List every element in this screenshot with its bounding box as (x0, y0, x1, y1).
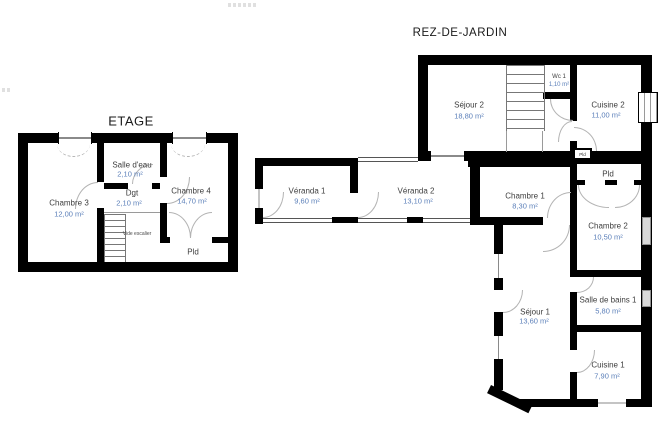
rdj-wall-veranda-divider (350, 158, 358, 193)
room-area-sejour1: 13,60 m² (519, 317, 549, 326)
rdj-wall-spine-a (570, 161, 577, 277)
etage-wall-bottom (18, 262, 238, 272)
etage-door-pld-left (169, 212, 191, 238)
etage-window-2 (172, 132, 207, 144)
etage-wall-int-h1b (152, 183, 160, 189)
etage-stair-edge-line (104, 212, 160, 213)
rdj-door-veranda1 (263, 192, 284, 218)
rdj-staircase-rail-left (506, 131, 507, 152)
etage-window-1-swing (57, 144, 90, 157)
rdj-door-hall (558, 121, 572, 142)
room-label-chambre4: Chambre 4 (171, 187, 211, 196)
rez-de-jardin-title: REZ-DE-JARDIN (413, 27, 508, 39)
etage-staircase (104, 214, 126, 262)
rdj-window-sejour1-lower (494, 335, 503, 360)
room-label-salle-deau: Salle d'eau (112, 161, 151, 170)
room-label-vide-escalier: Vide escalier (123, 231, 152, 237)
room-label-veranda1: Véranda 1 (289, 187, 326, 196)
room-area-sdb1: 5,80 m² (595, 307, 620, 316)
room-label-etage-pld: Pld (187, 248, 199, 257)
etage-wall-int-v2a (160, 143, 167, 177)
rdj-staircase-rail-right (542, 131, 543, 152)
rdj-wall-sejour1-left-a (494, 225, 503, 253)
room-area-dgt: 2,10 m² (116, 199, 141, 208)
rdj-window-sejour2 (430, 151, 465, 161)
room-label-veranda2: Véranda 2 (398, 187, 435, 196)
rdj-wall-upper-top (418, 55, 652, 65)
rdj-wall-veranda1-top (255, 158, 352, 166)
rdj-wall-chambre1-left (470, 163, 480, 225)
room-area-wc1: 1,10 m² (549, 82, 569, 88)
rdj-wall-lower-bottom (520, 399, 652, 407)
room-area-cuisine2: 11,00 m² (591, 111, 620, 120)
rdj-wall-veranda1-left-b (255, 207, 263, 224)
rdj-wall-sdb-cuisine1 (570, 325, 652, 332)
rdj-window-sejour1-upper (494, 253, 503, 279)
rdj-door-chambre1 (547, 192, 571, 218)
floor-plan-canvas: ETAGE Chambre 3 12,00 m² Salle d'eau 2,1… (0, 0, 667, 440)
rdj-veranda2-glazing-top (358, 157, 418, 162)
room-area-veranda2: 13,10 m² (403, 197, 433, 206)
rdj-pld-closet-small: Pld (573, 148, 592, 160)
room-label-wc1: Wc 1 (552, 74, 566, 80)
room-label-cuisine1: Cuisine 1 (591, 361, 624, 370)
rdj-wall-sejour1-left-c (494, 312, 503, 335)
rdj-veranda2-glazing-bottom-a (358, 218, 407, 223)
etage-window-2-swing (171, 144, 205, 157)
rdj-wall-chambre1-top (468, 158, 577, 167)
room-area-cuisine1: 7,90 m² (594, 372, 619, 381)
etage-wall-right (228, 133, 238, 272)
room-area-sejour2: 18,80 m² (454, 112, 484, 121)
room-label-chambre3: Chambre 3 (49, 199, 89, 208)
etage-wall-int-v1a (97, 143, 104, 182)
room-label-sejour1: Séjour 1 (520, 308, 550, 317)
room-area-chambre2: 10,50 m² (593, 233, 623, 242)
rdj-staircase (506, 65, 545, 131)
room-label-sdb1: Salle de bains 1 (580, 296, 637, 305)
etage-wall-left (18, 133, 28, 272)
etage-wall-pld-b (212, 237, 238, 243)
room-label-pld-small: Pld (579, 152, 586, 157)
rdj-window-cuisine1 (597, 399, 627, 407)
rdj-window-veranda1-left (255, 188, 263, 209)
rdj-veranda1-glazing-bottom (263, 218, 332, 223)
room-area-salle-deau: 2,10 m² (117, 170, 142, 179)
room-label-cuisine2: Cuisine 2 (591, 101, 624, 110)
etage-door-pld-right (190, 212, 212, 238)
rdj-door-pld-left (578, 185, 609, 208)
room-label-sejour2: Séjour 2 (454, 101, 484, 110)
room-area-chambre3: 12,00 m² (54, 210, 84, 219)
rdj-door-sdb1 (577, 277, 594, 293)
rdj-door-veranda2 (358, 192, 379, 218)
rdj-wall-chambre2-sdb (570, 270, 652, 277)
rdj-wall-spine-b (570, 292, 577, 350)
rdj-wall-lower-right (641, 163, 652, 407)
rdj-wall-upper-left (418, 55, 428, 161)
room-label-rdj-pld: Pld (602, 170, 614, 179)
rdj-door-wc1 (550, 99, 573, 121)
rdj-veranda-pillar-1 (332, 217, 358, 223)
room-area-veranda1: 9,60 m² (294, 197, 319, 206)
etage-wall-int-h1a (104, 183, 128, 189)
etage-title: ETAGE (108, 114, 154, 129)
room-area-chambre4: 14,70 m² (177, 197, 207, 206)
rdj-window-chambre2 (642, 217, 651, 245)
etage-window-1 (58, 132, 92, 144)
rdj-wall-sejour1-left-d (494, 358, 503, 390)
room-label-chambre2: Chambre 2 (588, 222, 628, 231)
print-artifact-top (228, 3, 256, 7)
rdj-window-sdb1 (642, 290, 651, 307)
rdj-wall-veranda1-left-a (255, 158, 263, 188)
room-area-chambre1: 8,30 m² (512, 202, 537, 211)
print-artifact-left (2, 88, 10, 92)
room-label-dgt: Dgt (126, 189, 138, 198)
rdj-door-sejour1-inner (543, 225, 570, 252)
rdj-door-pld-right (615, 185, 640, 208)
rdj-veranda-pillar-2 (407, 217, 423, 223)
etage-wall-int-v1b (97, 208, 104, 262)
rdj-veranda2-glazing-bottom-b (423, 218, 470, 223)
rdj-window-cuisine2 (638, 92, 658, 123)
rdj-wall-chambre1-sejour1-a (470, 217, 543, 225)
room-label-chambre1: Chambre 1 (505, 192, 545, 201)
